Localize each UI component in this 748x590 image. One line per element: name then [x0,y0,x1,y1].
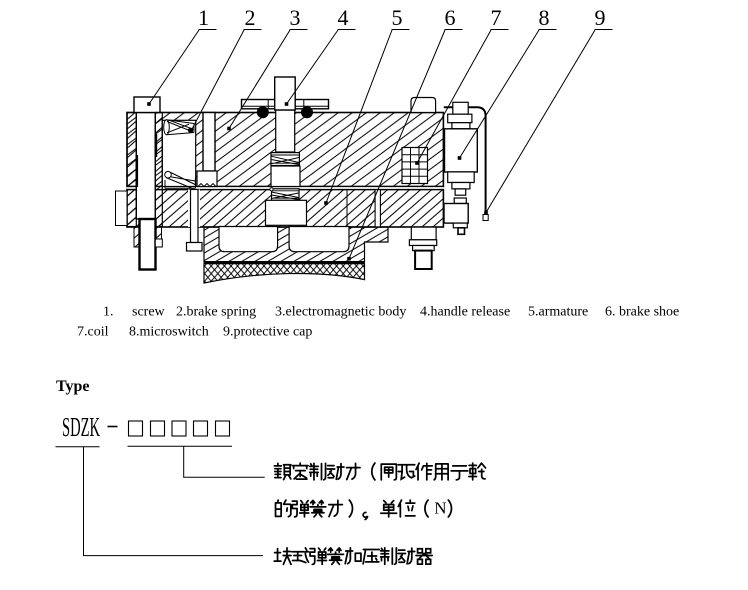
svg-text:6. brake shoe: 6. brake shoe [605,305,679,320]
svg-text:8.microswitch: 8.microswitch [129,325,209,340]
svg-text:4: 4 [338,5,349,30]
svg-text:2: 2 [245,5,256,30]
svg-text:8: 8 [539,5,550,30]
svg-text:N: N [434,499,446,518]
svg-text:3: 3 [290,5,301,30]
svg-text:7: 7 [491,5,502,30]
svg-text:9.protective cap: 9.protective cap [223,325,312,340]
svg-text:5: 5 [392,5,403,30]
svg-text:6: 6 [445,5,456,30]
svg-text:1: 1 [198,5,209,30]
svg-text:1.: 1. [103,305,114,320]
svg-text:5.armature: 5.armature [528,305,588,320]
svg-text:4.handle release: 4.handle release [420,305,510,320]
svg-text:SDZK: SDZK [62,412,100,442]
svg-text:screw: screw [132,305,166,320]
svg-text:Type: Type [56,378,89,395]
svg-text:9: 9 [595,5,606,30]
svg-text:7.coil: 7.coil [77,325,109,340]
svg-text:2.brake spring: 2.brake spring [176,305,256,320]
svg-text:3.electromagnetic body: 3.electromagnetic body [275,305,406,320]
